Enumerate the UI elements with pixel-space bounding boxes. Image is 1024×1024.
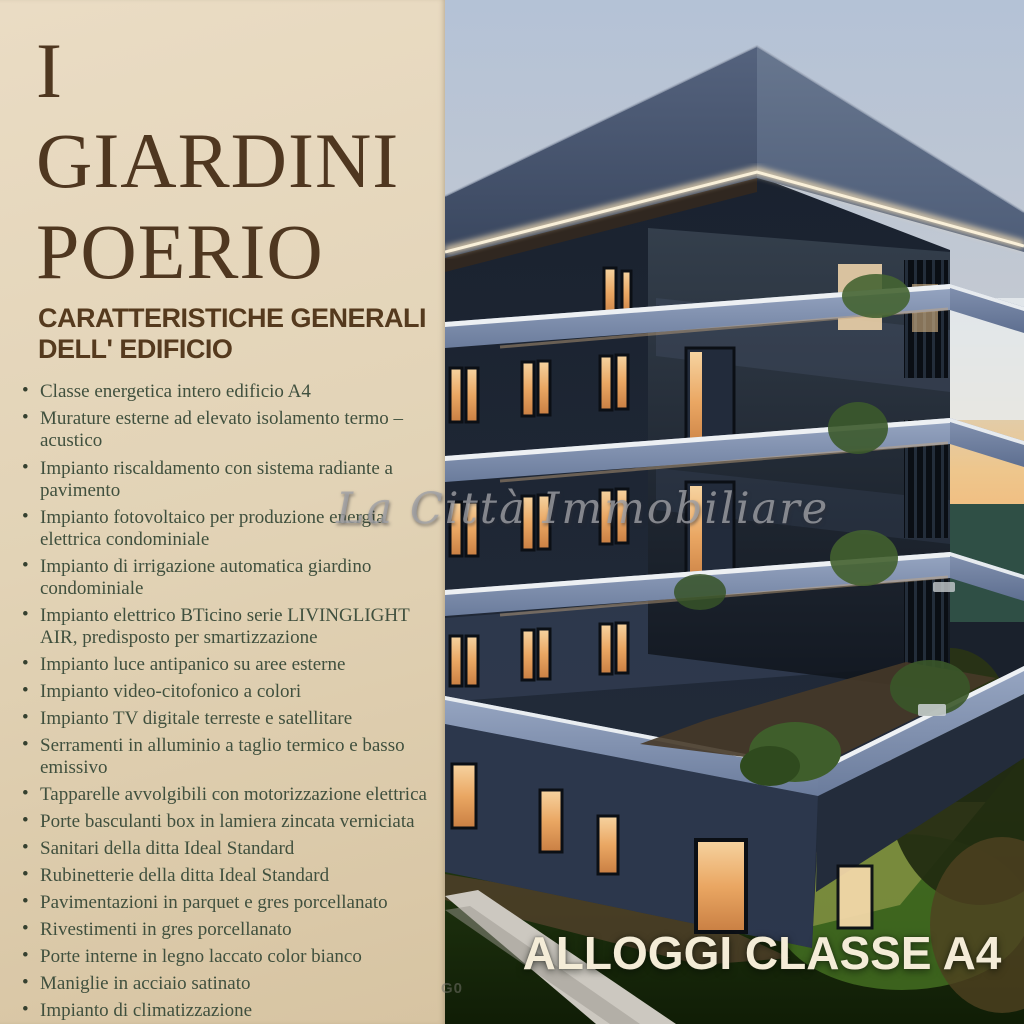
feature-item: Impianto di irrigazione automatica giard… — [40, 556, 441, 600]
feature-item: Tapparelle avvolgibili con motorizzazion… — [40, 784, 441, 806]
feature-item: Impianto luce antipanico su aree esterne — [40, 654, 441, 676]
feature-item: Pavimentazioni in parquet e gres porcell… — [40, 892, 441, 914]
feature-item: Rubinetterie della ditta Ideal Standard — [40, 865, 441, 887]
feature-item: Classe energetica intero edificio A4 — [40, 381, 441, 403]
class-a4-caption: ALLOGGI CLASSE A4 — [500, 926, 1024, 980]
feature-item: Impianto di climatizzazione — [40, 1000, 441, 1022]
bright-window — [838, 866, 872, 928]
feature-item: Porte basculanti box in lamiera zincata … — [40, 811, 441, 833]
flyer-page: I GIARDINIPOERIO CARATTERISTICHE GENERAL… — [0, 0, 1024, 1024]
features-list: Classe energetica intero edificio A4 Mur… — [0, 381, 445, 1022]
corner-mark: G0 — [441, 980, 463, 997]
section-heading-line2: DELL' EDIFICIO — [38, 334, 232, 364]
feature-item: Porte interne in legno laccato color bia… — [40, 946, 441, 968]
feature-item: Sanitari della ditta Ideal Standard — [40, 838, 441, 860]
watermark: La Città Immobiliare — [336, 484, 829, 534]
feature-item: Rivestimenti in gres porcellanato — [40, 919, 441, 941]
feature-item: Serramenti in alluminio a taglio termico… — [40, 735, 441, 779]
feature-item: Impianto video-citofonico a colori — [40, 681, 441, 703]
feature-item: Murature esterne ad elevato isolamento t… — [40, 408, 441, 452]
feature-item: Maniglie in acciaio satinato — [40, 973, 441, 995]
project-title-line2: POERIO — [36, 208, 324, 295]
project-title: I GIARDINIPOERIO — [0, 0, 445, 297]
feature-item: Impianto TV digitale terreste e satellit… — [40, 708, 441, 730]
project-title-line1: I GIARDINI — [36, 27, 399, 204]
section-heading: CARATTERISTICHE GENERALIDELL' EDIFICIO — [0, 303, 445, 364]
feature-item: Impianto elettrico BTicino serie LIVINGL… — [40, 605, 441, 649]
section-heading-line1: CARATTERISTICHE GENERALI — [38, 303, 426, 333]
